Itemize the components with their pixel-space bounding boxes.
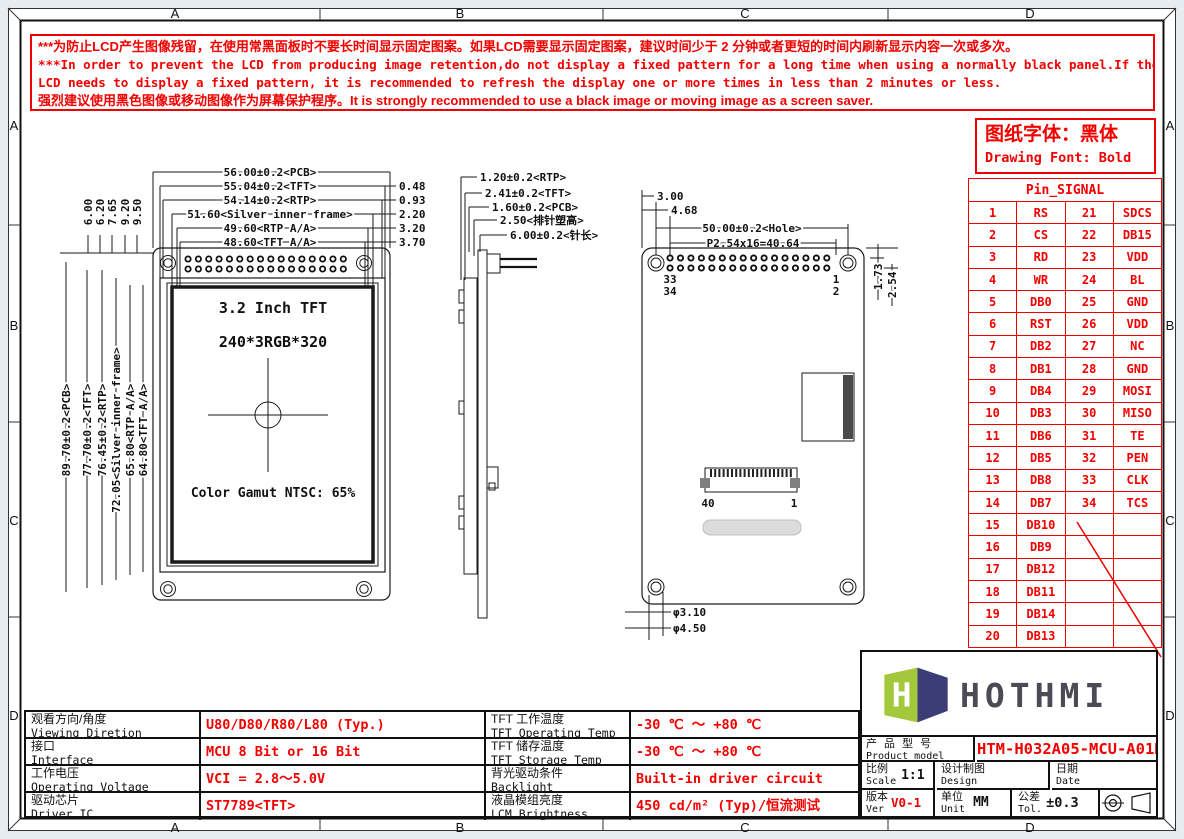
projection-symbol-icon <box>1100 790 1156 816</box>
version-cell: 版本 Ver V0-1 <box>862 790 935 816</box>
zone-top-b: B <box>450 6 470 21</box>
display-size-text: 3.2 Inch TFT <box>219 299 327 317</box>
unit-label-en: Unit <box>937 804 965 815</box>
date-label-en: Date <box>1052 776 1080 787</box>
dim-hole-outer-dia: φ4.50 <box>673 622 706 635</box>
side-glass-stack <box>464 278 477 574</box>
side-view: 1.20±0.2<RTP> 2.41±0.2<TFT> 1.60±0.2<PCB… <box>459 171 599 618</box>
zone-top-c: C <box>735 6 755 21</box>
dim-top-rtp: 54.14±0.2<RTP> <box>224 194 317 207</box>
dim-back-300: 3.00 <box>657 190 684 203</box>
back-pcb-outline <box>642 248 864 604</box>
product-model-value: HTM-H032A05-MCU-A01R <box>977 737 1156 762</box>
back-view: 3.00 4.68 50.00±0.2<Hole> P2.54x16=40.64… <box>625 190 899 640</box>
dim-side-rtp: 1.20±0.2<RTP> <box>480 171 566 184</box>
retention-warning-box: ***为防止LCD产生图像残留，在使用常黑面板时不要长时间显示固定图案。如果LC… <box>30 34 1155 111</box>
warning-line-4: 强烈建议使用黑色图像或移动图像作为屏幕保护程序。It is strongly r… <box>38 92 1147 110</box>
spec-value: Built-in driver circuit <box>631 766 862 793</box>
mechanical-drawing: 56.00±0.2<PCB> 55.04±0.2<TFT> 54.14±0.2<… <box>40 140 970 700</box>
spec-label: 观看方向/角度Viewing Diretion <box>26 712 201 739</box>
dim-tl-765: 7.65 <box>106 199 119 226</box>
brand-name: HOTHMI <box>960 676 1109 715</box>
spec-value: 450 cd/m² (Typ)/恒流测试 <box>631 793 862 820</box>
spec-value: ST7789<TFT> <box>201 793 486 820</box>
scale-value: 1:1 <box>896 762 924 790</box>
zone-right-b: B <box>1160 318 1180 333</box>
dim-back-468: 4.68 <box>671 204 698 217</box>
zone-left-c: C <box>4 513 24 528</box>
dim-side-tft: 2.41±0.2<TFT> <box>485 187 571 200</box>
projection-symbol-cell <box>1100 790 1156 816</box>
dim-left-tft-aa: 64.80<TFT A/A> <box>137 383 150 476</box>
dim-offset-220: 2.20 <box>399 208 426 221</box>
pin-signal-table: Pin_SIGNAL 1RS21SDCS 2CS22DB15 3RD23VDD … <box>968 178 1162 658</box>
dim-left-silver-frame: 72.05<Silver inner frame> <box>110 347 123 513</box>
spec-label: 背光驱动条件Backlight conditions <box>486 766 631 793</box>
title-block: H HOTHMI 产 品 型 号 Product model HTM-H032A… <box>860 650 1158 818</box>
side-pcb-bar <box>478 250 487 618</box>
date-label-cn: 日期 <box>1052 762 1080 776</box>
zone-right-c: C <box>1160 513 1180 528</box>
dim-side-pin-length: 6.00±0.2<针长> <box>510 228 599 242</box>
tol-value: ±0.3 <box>1042 790 1079 816</box>
product-label-en: Product model <box>862 751 973 762</box>
spec-label: 驱动芯片Driver IC <box>26 793 201 820</box>
dim-left-pcb: 89.70±0.2<PCB> <box>60 383 73 476</box>
product-label-cn: 产 品 型 号 <box>862 737 973 751</box>
crosshair-icon <box>208 358 328 472</box>
product-label-cell: 产 品 型 号 Product model <box>862 737 975 762</box>
hothmi-logo-icon: H <box>880 658 952 732</box>
dim-back-hole-span: 50.00±0.2<Hole> <box>702 222 802 235</box>
logo-row: H HOTHMI <box>862 652 1156 737</box>
spec-label: 液晶模组亮度LCM Brightness <box>486 793 631 820</box>
dim-side-header-height: 2.50<排针塑高> <box>500 213 584 227</box>
dim-offset-093: 0.93 <box>399 194 426 207</box>
front-tft-outline <box>160 278 385 572</box>
tolerance-cell: 公差 Tol. ±0.3 <box>1014 790 1100 816</box>
ver-value: V0-1 <box>888 790 921 816</box>
connector-pin-1: 1 <box>791 497 798 510</box>
display-gamut-text: Color Gamut NTSC: 65% <box>191 486 356 501</box>
display-resolution-text: 240*3RGB*320 <box>219 333 327 351</box>
font-note-cn: 图纸字体：黑体 <box>985 122 1146 148</box>
dim-back-254: 2.54 <box>886 271 899 298</box>
spec-value: VCI = 2.8～5.0V <box>201 766 486 793</box>
spec-value: U80/D80/R80/L80 (Typ.) <box>201 712 486 739</box>
zone-left-d: D <box>4 708 24 723</box>
dim-top-tft: 55.04±0.2<TFT> <box>224 180 317 193</box>
dim-side-pcb: 1.60±0.2<PCB> <box>492 201 578 214</box>
design-label-en: Design <box>937 776 1048 787</box>
unit-cell: 单位 Unit MM <box>937 790 1012 816</box>
warning-line-1: ***为防止LCD产生图像残留，在使用常黑面板时不要长时间显示固定图案。如果LC… <box>38 38 1147 56</box>
dim-hole-inner-dia: φ3.10 <box>673 606 706 619</box>
scale-label-en: Scale <box>862 776 896 787</box>
front-active-area <box>172 287 373 562</box>
dim-top-pcb: 56.00±0.2<PCB> <box>224 166 317 179</box>
design-label-cn: 设计制图 <box>937 762 1048 776</box>
dim-top-rtp-aa: 49.60<RTP A/A> <box>224 222 317 235</box>
spec-label: 接口Interface <box>26 739 201 766</box>
spec-label: TFT 工作温度TFT Operating Temp <box>486 712 631 739</box>
scale-label-cn: 比例 <box>862 762 896 776</box>
dim-left-tft: 77.70±0.2<TFT> <box>81 383 94 476</box>
back-fpc-contacts <box>843 375 853 439</box>
ver-label-cn: 版本 <box>862 790 888 804</box>
dim-back-173: 1.73 <box>872 264 885 291</box>
zone-top-a: A <box>165 6 185 21</box>
design-cell: 设计制图 Design <box>937 762 1050 790</box>
date-cell: 日期 Date 2025-09-22 <box>1052 762 1156 790</box>
dim-top-tft-aa: 48.60<TFT A/A> <box>224 236 317 249</box>
front-silver-frame <box>167 283 378 566</box>
spec-value: MCU 8 Bit or 16 Bit <box>201 739 486 766</box>
dim-offset-320: 3.20 <box>399 222 426 235</box>
dim-left-rtp: 76.45±0.2<RTP> <box>96 383 109 476</box>
zone-left-b: B <box>4 318 24 333</box>
spec-label: 工作电压Operating Voltage <box>26 766 201 793</box>
dim-tl-950: 9.50 <box>131 199 144 226</box>
dim-left-rtp-aa: 65.80<RTP A/A> <box>124 383 137 476</box>
tol-label-cn: 公差 <box>1014 790 1042 804</box>
side-pin-header <box>487 254 500 273</box>
back-pin-34: 34 <box>663 285 677 298</box>
zone-bottom-c: C <box>735 820 755 835</box>
tol-label-en: Tol. <box>1014 804 1042 815</box>
unit-value: MM <box>965 790 989 816</box>
font-note-en: Drawing Font: Bold <box>985 148 1146 168</box>
spec-value: -30 ℃ ～ +80 ℃ <box>631 739 862 766</box>
svg-text:H: H <box>892 676 912 715</box>
zone-left-a: A <box>4 118 24 133</box>
spec-label: TFT 储存温度TFT Storage Temp <box>486 739 631 766</box>
scale-cell: 比例 Scale 1:1 <box>862 762 935 790</box>
zone-bottom-d: D <box>1020 820 1040 835</box>
ver-label-en: Ver <box>862 804 888 815</box>
connector-pin-40: 40 <box>701 497 714 510</box>
back-label-bar <box>703 520 801 535</box>
dim-top-silver-frame: 51.60<Silver inner frame> <box>187 208 353 221</box>
back-pin-2: 2 <box>833 285 840 298</box>
zone-top-d: D <box>1020 6 1040 21</box>
front-view: 56.00±0.2<PCB> 55.04±0.2<TFT> 54.14±0.2<… <box>60 166 426 600</box>
drawing-font-note: 图纸字体：黑体 Drawing Font: Bold <box>975 118 1156 174</box>
zone-bottom-a: A <box>165 820 185 835</box>
spec-table: 观看方向/角度Viewing Diretion U80/D80/R80/L80 … <box>24 710 860 818</box>
zone-right-d: D <box>1160 708 1180 723</box>
unit-label-cn: 单位 <box>937 790 965 804</box>
zone-right-a: A <box>1160 118 1180 133</box>
dim-offset-048: 0.48 <box>399 180 426 193</box>
warning-line-3: LCD needs to display a fixed pattern, it… <box>38 74 1147 92</box>
warning-line-2: ***In order to prevent the LCD from prod… <box>38 56 1147 74</box>
zone-bottom-b: B <box>450 820 470 835</box>
drawing-sheet: A B C D A B C D A B C D A B C D ***为防止LC… <box>0 0 1184 839</box>
dim-offset-370: 3.70 <box>399 236 426 249</box>
spec-value: -30 ℃ ～ +80 ℃ <box>631 712 862 739</box>
pin-table-diagonal <box>968 178 1162 658</box>
